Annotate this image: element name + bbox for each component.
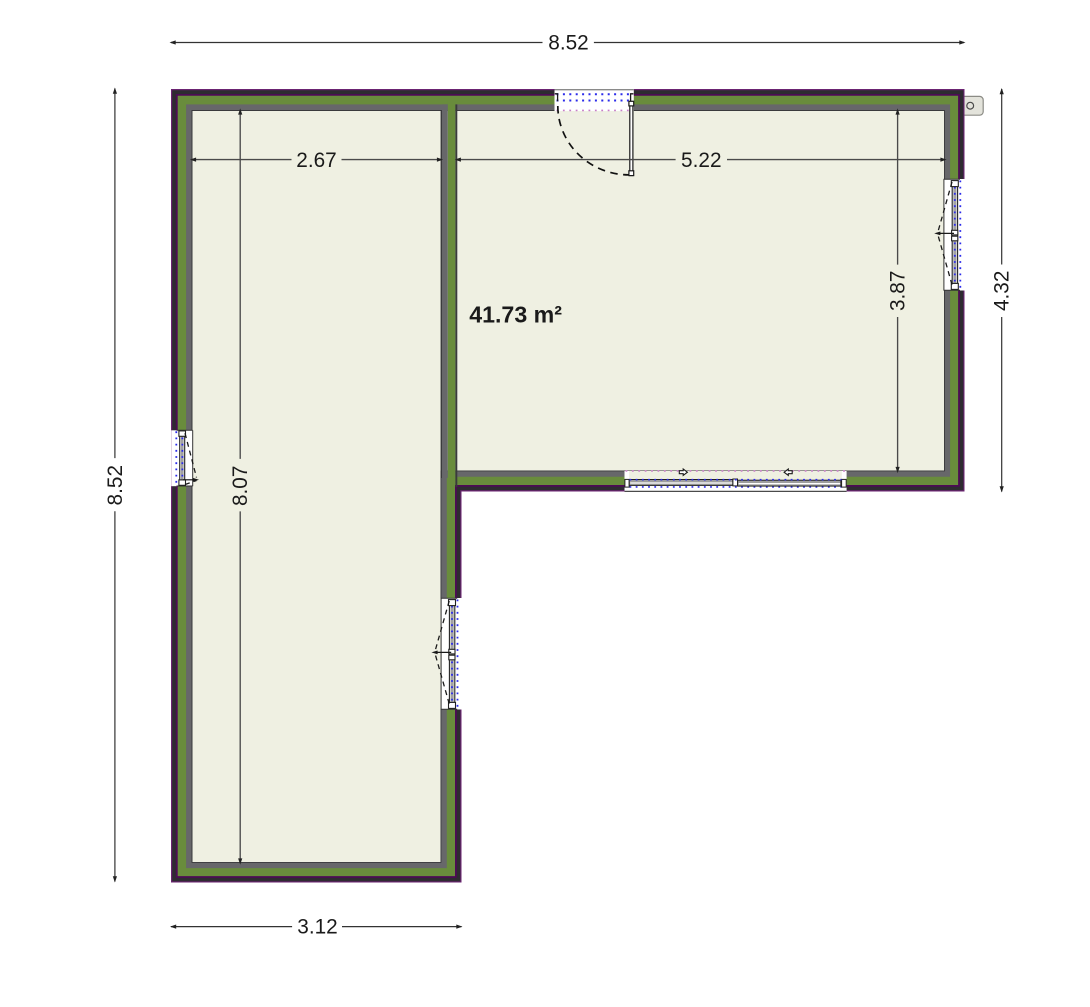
- svg-text:5.22: 5.22: [681, 149, 721, 172]
- svg-text:8.07: 8.07: [229, 466, 252, 506]
- svg-text:2.67: 2.67: [296, 149, 336, 172]
- svg-text:3.12: 3.12: [297, 916, 337, 939]
- svg-text:41.73 m²: 41.73 m²: [469, 302, 562, 328]
- svg-text:3.87: 3.87: [887, 271, 910, 311]
- svg-text:8.52: 8.52: [104, 465, 127, 505]
- svg-text:8.52: 8.52: [548, 32, 588, 55]
- svg-text:4.32: 4.32: [991, 271, 1014, 311]
